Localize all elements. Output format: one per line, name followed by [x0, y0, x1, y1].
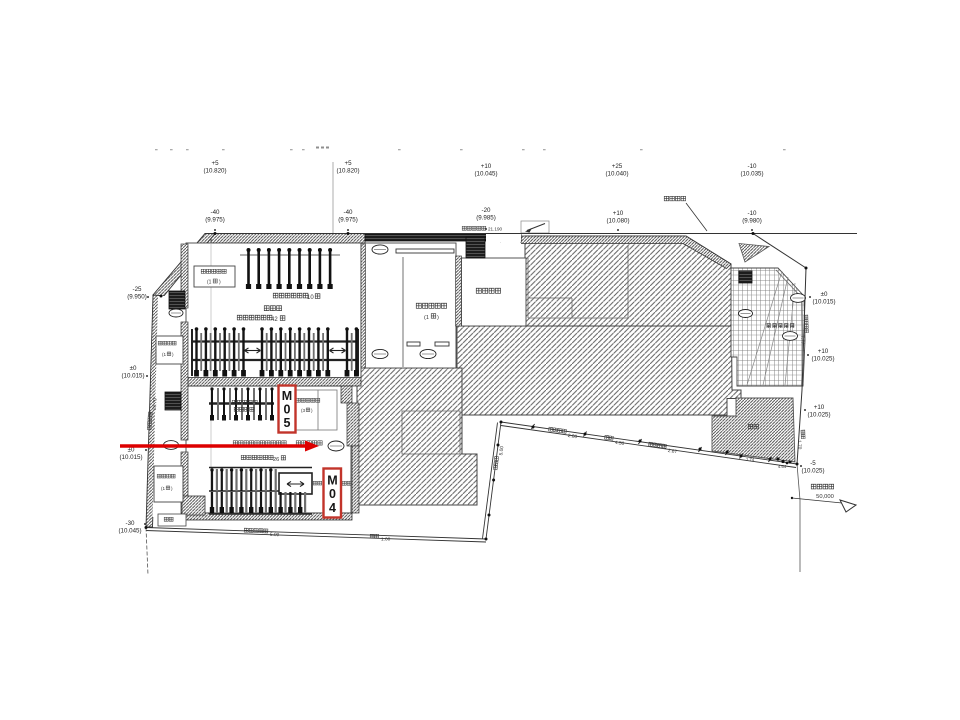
svg-text:(10.040): (10.040): [605, 171, 628, 178]
svg-text:±0: ±0: [821, 291, 828, 298]
svg-text:(9.975): (9.975): [338, 217, 358, 224]
svg-text:(10.025): (10.025): [801, 468, 824, 475]
svg-text:(10.015): (10.015): [119, 454, 142, 461]
svg-text:-10: -10: [748, 210, 758, 217]
svg-text:-40: -40: [344, 209, 354, 216]
svg-text:(10.820): (10.820): [336, 168, 359, 175]
svg-text:+10: +10: [481, 163, 492, 170]
svg-text:-20: -20: [482, 207, 492, 214]
svg-text:(1: (1: [161, 486, 166, 491]
svg-text:(9.980): (9.980): [742, 218, 762, 225]
svg-text:-5: -5: [810, 460, 816, 467]
svg-text:5.00: 5.00: [498, 445, 505, 455]
svg-text:(10.820): (10.820): [203, 168, 226, 175]
svg-text:-40: -40: [211, 209, 221, 216]
svg-text:4.64: 4.64: [778, 464, 787, 469]
svg-text:(3: (3: [301, 408, 306, 413]
svg-text:(9.950): (9.950): [127, 294, 147, 301]
svg-text:-30: -30: [126, 520, 136, 527]
svg-text:+10: +10: [818, 348, 829, 355]
svg-text:26: 26: [273, 457, 279, 463]
svg-text:0: 0: [329, 487, 336, 501]
svg-text:(10.025): (10.025): [807, 412, 830, 419]
svg-text:(1: (1: [207, 280, 212, 286]
svg-text:-10: -10: [748, 163, 758, 170]
svg-text:M: M: [282, 389, 292, 403]
svg-text:+25: +25: [612, 163, 623, 170]
svg-text:(10.045): (10.045): [118, 528, 141, 535]
svg-text:(10.035): (10.035): [740, 171, 763, 178]
svg-text:5.00: 5.00: [270, 532, 280, 538]
svg-text:): ): [437, 315, 439, 321]
svg-text:1.70: 1.70: [796, 440, 802, 450]
svg-text:21.190: 21.190: [488, 227, 502, 232]
svg-text:(1: (1: [424, 315, 429, 321]
svg-text:+10: +10: [613, 210, 624, 217]
svg-text:1.00: 1.00: [381, 537, 391, 543]
svg-text:M: M: [327, 474, 337, 488]
svg-text:7.77: 7.77: [799, 335, 805, 345]
svg-text:0: 0: [284, 403, 291, 417]
svg-text:+10: +10: [814, 404, 825, 411]
svg-text:4: 4: [329, 501, 336, 515]
svg-text:+5: +5: [211, 160, 219, 167]
svg-text:(9.985): (9.985): [476, 215, 496, 222]
svg-text:(10.015): (10.015): [121, 373, 144, 380]
svg-text:42: 42: [271, 317, 278, 323]
svg-text:(10.015): (10.015): [812, 299, 835, 306]
svg-text:23.70: 23.70: [152, 398, 159, 411]
svg-text:-25: -25: [133, 286, 143, 293]
svg-text:10: 10: [307, 295, 314, 301]
svg-text:1.74: 1.74: [746, 457, 755, 462]
svg-text:+5: +5: [344, 160, 352, 167]
svg-text:(10.080): (10.080): [606, 218, 629, 225]
svg-text:(10.045): (10.045): [474, 171, 497, 178]
svg-text:±0: ±0: [130, 365, 137, 372]
svg-text:(9.975): (9.975): [205, 217, 225, 224]
svg-text:(1: (1: [162, 352, 167, 357]
svg-text:(10.025): (10.025): [811, 356, 834, 363]
svg-text:5: 5: [284, 416, 291, 430]
svg-text:50,000: 50,000: [816, 494, 834, 500]
